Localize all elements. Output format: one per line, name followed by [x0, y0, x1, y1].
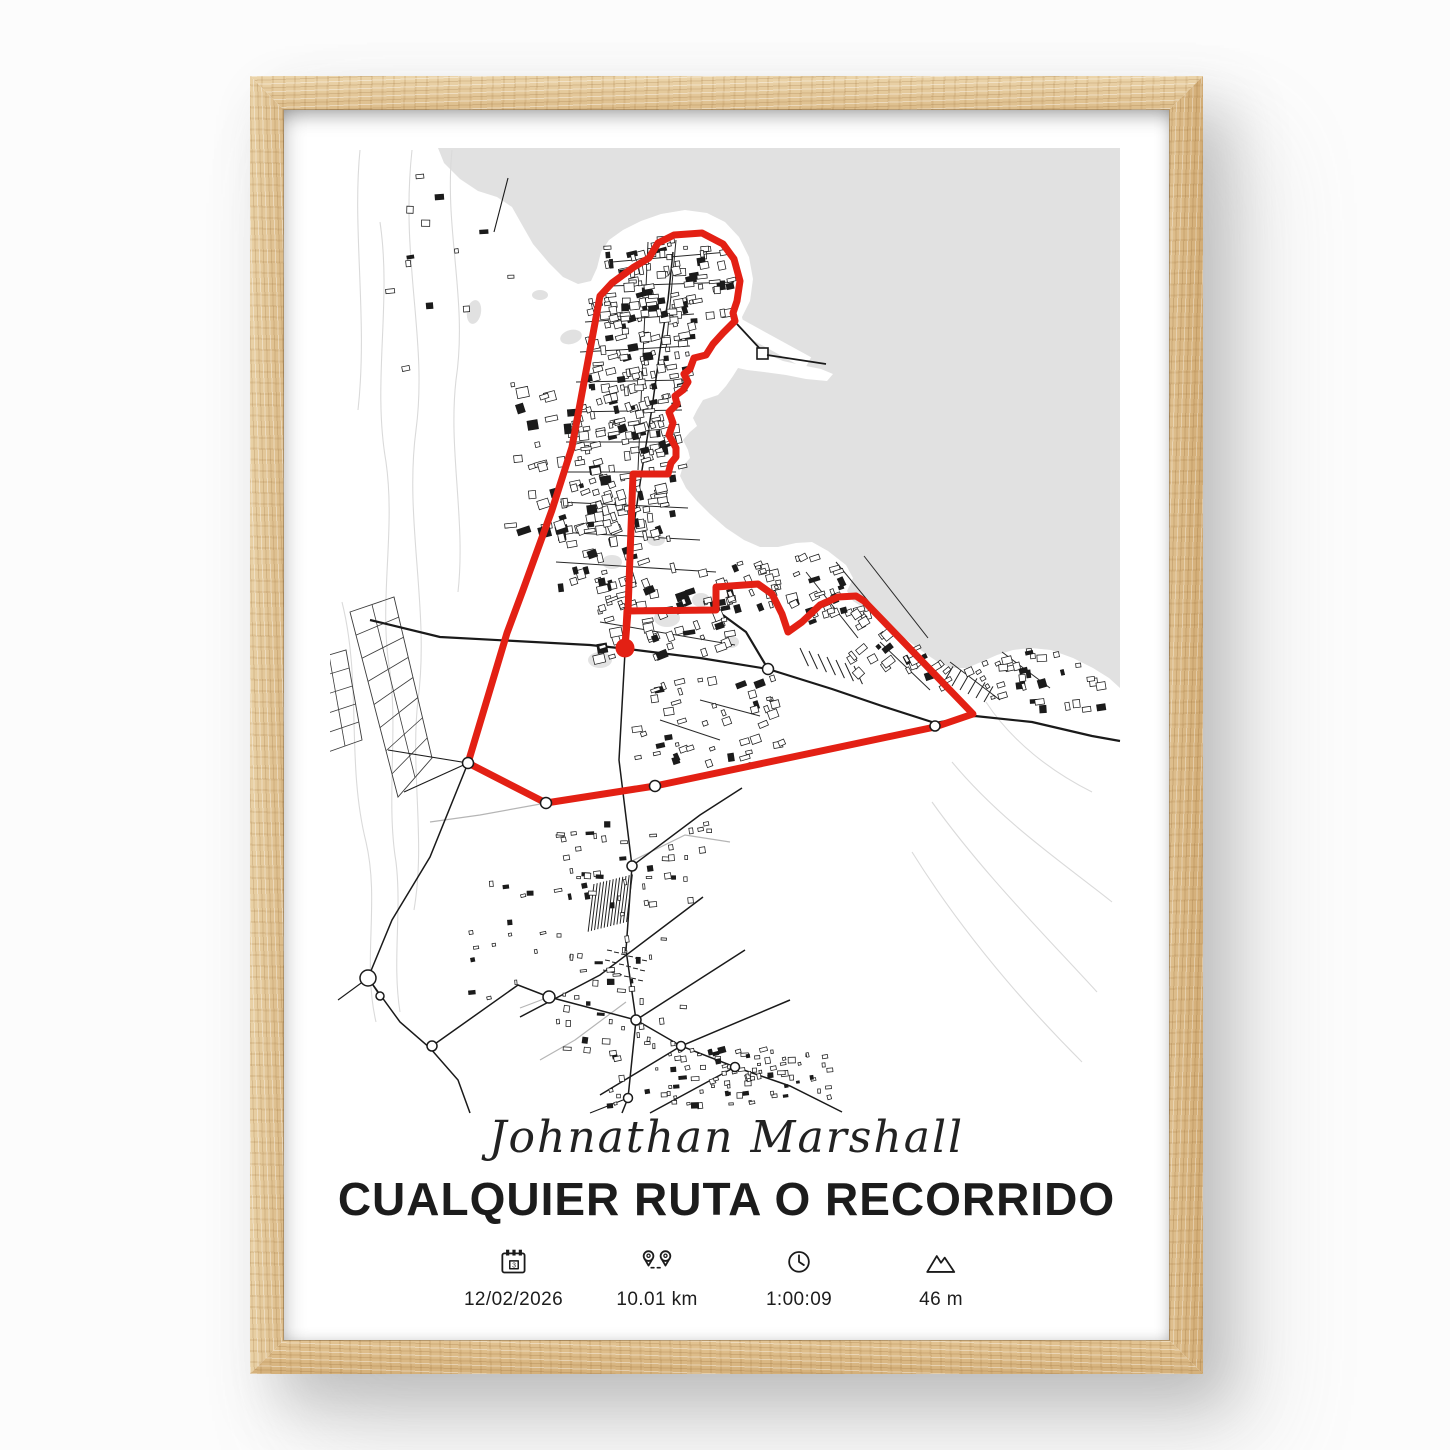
frame-top: [250, 76, 1203, 110]
stat-elevation-value: 46 m: [919, 1289, 963, 1311]
time-icon: [781, 1246, 817, 1282]
product-photo: Johnathan Marshall CUALQUIER RUTA O RECO…: [0, 0, 1450, 1450]
route-map: [330, 148, 1122, 1114]
stat-date-value: 12/02/2026: [464, 1289, 563, 1311]
frame-right: [1169, 76, 1203, 1374]
elevation-icon: [923, 1246, 959, 1282]
calendar-icon: 3: [496, 1246, 532, 1282]
stat-elevation: 46 m: [893, 1246, 989, 1311]
frame-left: [250, 76, 284, 1374]
poster-title: CUALQUIER RUTA O RECORRIDO: [284, 1172, 1169, 1226]
stat-date: 3 12/02/2026: [464, 1246, 563, 1311]
route-start-marker: [616, 639, 635, 658]
distance-icon: [639, 1246, 675, 1282]
frame-bottom: [250, 1340, 1203, 1374]
route-poster: Johnathan Marshall CUALQUIER RUTA O RECO…: [284, 110, 1169, 1340]
athlete-name: Johnathan Marshall: [284, 1112, 1169, 1163]
stat-distance: 10.01 km: [609, 1246, 705, 1311]
stat-time: 1:00:09: [751, 1246, 847, 1311]
stat-time-value: 1:00:09: [766, 1289, 832, 1311]
stats-row: 3 12/02/2026 10.01 km: [284, 1246, 1169, 1311]
stat-distance-value: 10.01 km: [616, 1289, 697, 1311]
svg-text:3: 3: [512, 1262, 516, 1269]
